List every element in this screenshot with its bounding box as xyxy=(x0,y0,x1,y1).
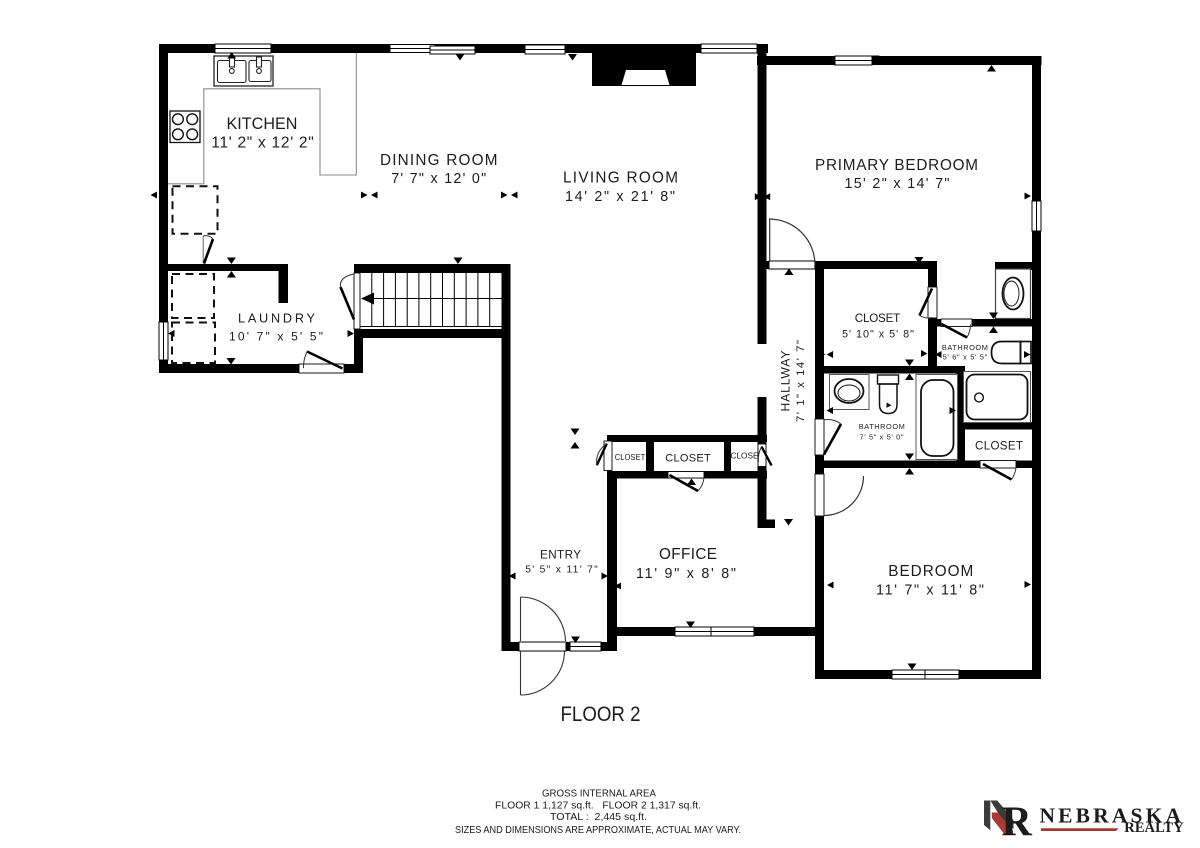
svg-text:CLOSET: CLOSET xyxy=(975,440,1023,453)
svg-text:KITCHEN: KITCHEN xyxy=(227,114,298,133)
svg-text:7' 5" x 5' 0": 7' 5" x 5' 0" xyxy=(860,433,904,442)
svg-text:SIZES AND DIMENSIONS ARE APPRO: SIZES AND DIMENSIONS ARE APPROXIMATE, AC… xyxy=(455,824,741,836)
svg-text:FLOOR 2: FLOOR 2 xyxy=(561,703,641,726)
svg-text:7' 1" x 14' 7": 7' 1" x 14' 7" xyxy=(795,340,807,422)
svg-text:CLOSET: CLOSET xyxy=(665,453,711,465)
svg-text:BEDROOM: BEDROOM xyxy=(888,563,973,580)
svg-text:11' 9" x 8' 8": 11' 9" x 8' 8" xyxy=(636,566,736,582)
svg-text:FLOOR 1 1,127 sq.ft. FLOOR 2: FLOOR 1 1,127 sq.ft. FLOOR 2 1,317 sq.ft… xyxy=(495,800,701,812)
svg-text:HALLWAY: HALLWAY xyxy=(779,351,793,412)
svg-text:BATHROOM: BATHROOM xyxy=(859,422,905,431)
svg-text:GROSS INTERNAL AREA: GROSS INTERNAL AREA xyxy=(542,788,656,800)
svg-text:REALTY: REALTY xyxy=(1124,820,1184,836)
svg-text:LIVING ROOM: LIVING ROOM xyxy=(563,170,678,187)
svg-text:TOTAL : 2,445 sq.ft.: TOTAL : 2,445 sq.ft. xyxy=(550,811,647,823)
svg-text:OFFICE: OFFICE xyxy=(659,546,717,563)
svg-text:R: R xyxy=(1002,800,1033,846)
svg-text:BATHROOM: BATHROOM xyxy=(942,343,988,352)
svg-text:11' 2" x 12' 2": 11' 2" x 12' 2" xyxy=(211,135,314,152)
svg-text:5' 10" x 5' 8": 5' 10" x 5' 8" xyxy=(842,329,914,341)
svg-text:7' 7" x 12' 0": 7' 7" x 12' 0" xyxy=(391,171,486,187)
svg-text:DINING ROOM: DINING ROOM xyxy=(380,152,498,169)
svg-text:14' 2" x 21' 8": 14' 2" x 21' 8" xyxy=(565,189,675,205)
svg-text:CLOSET: CLOSET xyxy=(855,312,900,325)
svg-text:15' 2" x 14' 7": 15' 2" x 14' 7" xyxy=(845,176,950,192)
svg-text:ENTRY: ENTRY xyxy=(540,549,581,562)
svg-text:PRIMARY BEDROOM: PRIMARY BEDROOM xyxy=(815,157,978,174)
svg-text:5' 6" x 5' 5": 5' 6" x 5' 5" xyxy=(943,353,988,362)
svg-text:CLOSET: CLOSET xyxy=(615,453,646,462)
svg-text:5' 5" x 11' 7": 5' 5" x 11' 7" xyxy=(525,565,598,576)
